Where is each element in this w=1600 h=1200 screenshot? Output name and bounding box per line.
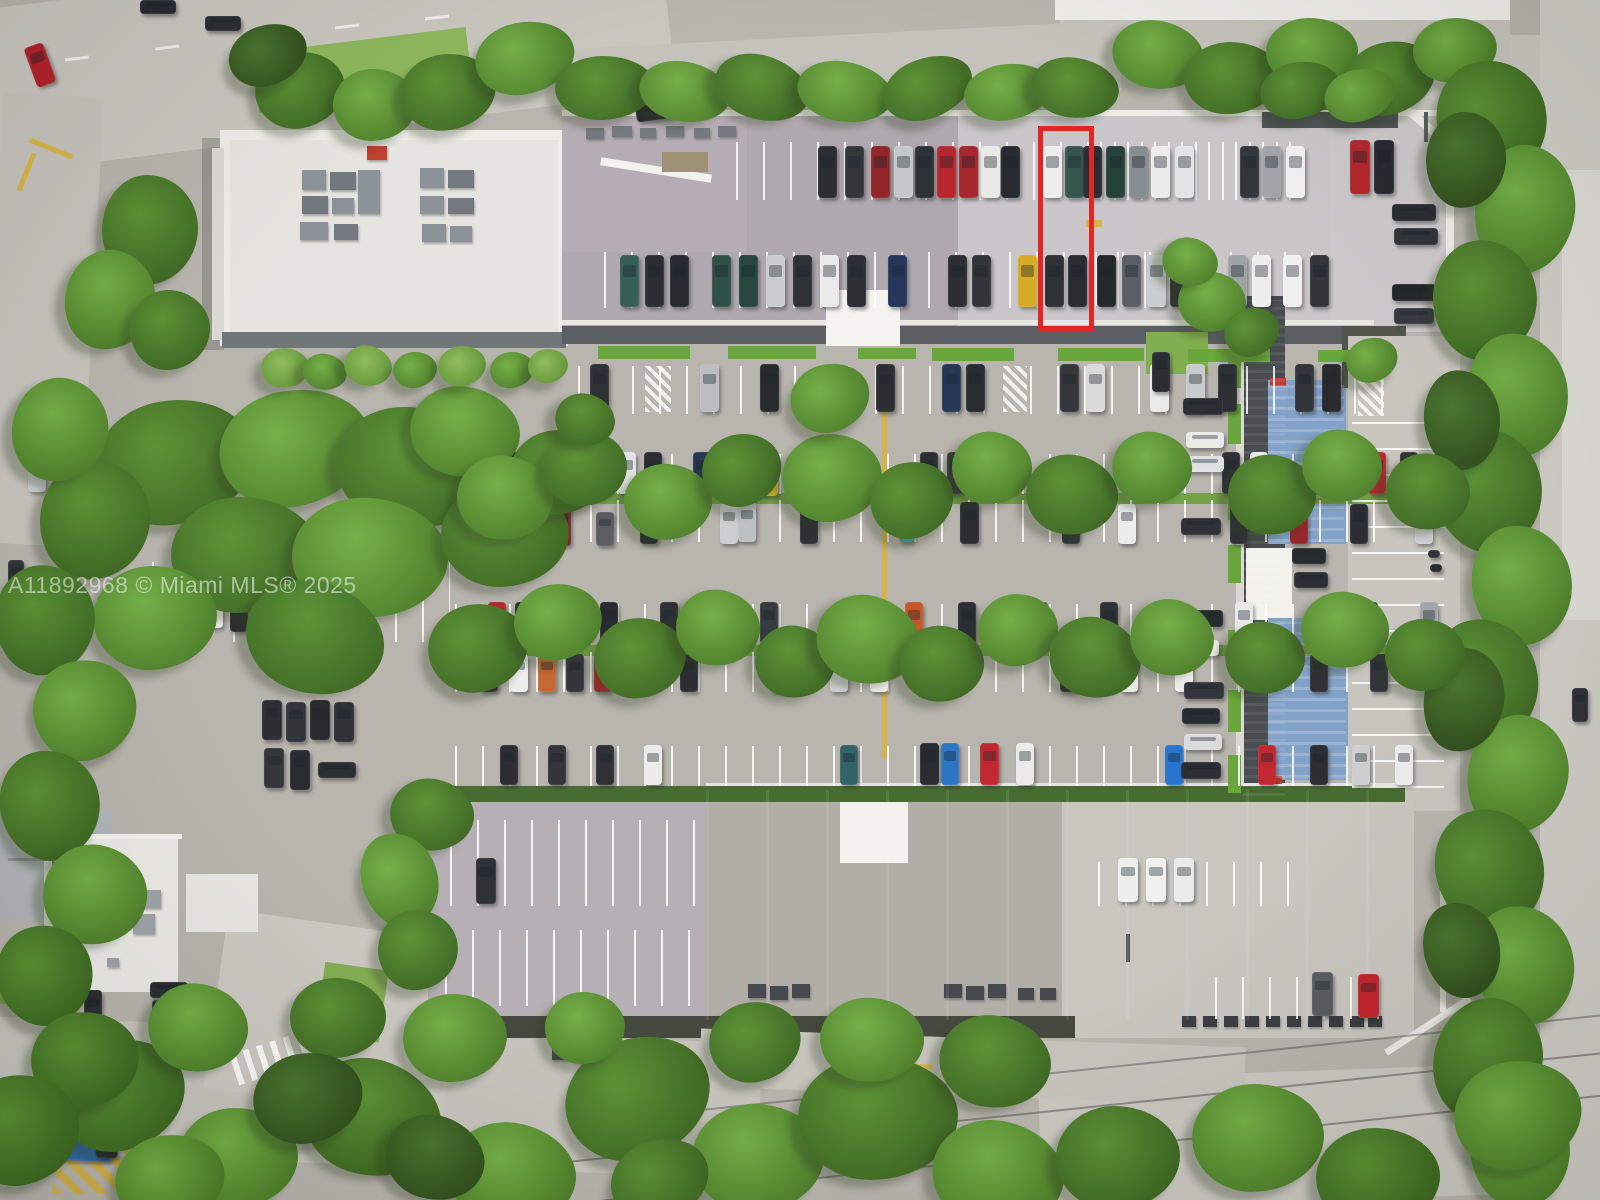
roof-equipment: [586, 128, 604, 139]
tree-canopy: [300, 350, 350, 394]
car: [1097, 255, 1116, 307]
roof-equipment: [666, 126, 684, 137]
car-windshield: [1192, 435, 1218, 439]
car: [548, 745, 566, 785]
car: [1018, 255, 1037, 307]
car: [1122, 255, 1141, 307]
car-windshield: [918, 156, 931, 167]
roof-equipment: [367, 146, 387, 160]
roof-equipment: [612, 126, 632, 137]
car: [566, 654, 584, 692]
tree-canopy: [526, 347, 569, 385]
parking-stripes: [1243, 300, 1285, 796]
car-windshield: [1399, 287, 1429, 291]
car-windshield: [1155, 360, 1167, 369]
car: [500, 745, 518, 785]
car-windshield: [146, 3, 171, 6]
paint-marking: [882, 396, 887, 758]
car: [1152, 352, 1170, 392]
car-windshield: [741, 510, 753, 519]
car: [1016, 743, 1034, 785]
car: [1184, 682, 1224, 699]
car-windshield: [1021, 265, 1034, 276]
car: [1151, 146, 1170, 198]
car-windshield: [1125, 265, 1138, 276]
car-windshield: [293, 758, 307, 767]
tree-canopy: [392, 350, 439, 390]
car-windshield: [1154, 156, 1167, 167]
car: [1258, 745, 1276, 785]
car-windshield: [663, 610, 675, 619]
car-windshield: [1298, 374, 1311, 385]
car-windshield: [1019, 751, 1031, 760]
car-windshield: [1289, 156, 1302, 167]
car: [1286, 146, 1305, 198]
car-windshield: [623, 265, 636, 276]
roof-equipment: [332, 198, 354, 214]
car-windshield: [1187, 521, 1214, 525]
roof-equipment: [420, 168, 444, 188]
car: [840, 745, 858, 785]
car: [286, 702, 306, 742]
roof-equipment: [334, 224, 358, 240]
car-windshield: [763, 374, 776, 385]
car: [980, 743, 999, 785]
car: [1181, 518, 1221, 535]
car-windshield: [963, 510, 976, 519]
car: [264, 748, 284, 788]
car-windshield: [983, 751, 996, 760]
car-windshield: [1377, 151, 1391, 163]
car: [1310, 745, 1328, 785]
car-windshield: [769, 265, 782, 276]
roof-equipment: [718, 126, 736, 137]
car: [959, 146, 978, 198]
car-windshield: [879, 374, 892, 385]
car: [1181, 762, 1221, 779]
car: [720, 504, 738, 544]
roof-equipment: [448, 198, 474, 214]
car-windshield: [715, 265, 728, 276]
car-windshield: [479, 867, 493, 877]
car-windshield: [1089, 374, 1102, 385]
car: [1392, 284, 1436, 301]
car-windshield: [1432, 566, 1440, 568]
paint-marking: [1228, 690, 1241, 732]
car: [1394, 308, 1434, 324]
mls-watermark: A11892968 © Miami MLS® 2025: [8, 572, 357, 599]
car-windshield: [1355, 753, 1367, 762]
car-windshield: [969, 374, 982, 385]
car-windshield: [1004, 156, 1017, 167]
parking-stripes: [706, 790, 1406, 1020]
car: [290, 750, 310, 790]
car: [738, 502, 756, 542]
car: [739, 255, 758, 307]
car-windshield: [1400, 311, 1427, 315]
car-windshield: [211, 19, 236, 22]
car-windshield: [940, 156, 953, 167]
car-windshield: [673, 265, 686, 276]
car-windshield: [891, 265, 904, 276]
car-windshield: [1187, 765, 1214, 769]
car-windshield: [267, 756, 281, 765]
car-windshield: [1261, 753, 1273, 762]
car-windshield: [1063, 374, 1076, 385]
roof-equipment: [422, 224, 446, 242]
roof-equipment: [358, 170, 380, 214]
paint-marking: [1058, 348, 1144, 361]
car-windshield: [1132, 156, 1145, 167]
car: [1252, 255, 1271, 307]
car: [1001, 146, 1020, 198]
ground-shape: [230, 140, 558, 336]
roof-equipment: [302, 170, 326, 190]
car: [1283, 255, 1302, 307]
roof-equipment: [450, 226, 472, 242]
car: [876, 364, 895, 412]
car: [1118, 504, 1136, 544]
car-windshield: [1353, 151, 1367, 163]
car: [915, 146, 934, 198]
car-windshield: [984, 156, 997, 167]
car-windshield: [1265, 156, 1278, 167]
car-windshield: [1100, 265, 1113, 276]
car: [670, 255, 689, 307]
car-windshield: [324, 765, 350, 769]
roof-equipment: [300, 222, 328, 240]
roof-equipment: [448, 170, 474, 188]
car-windshield: [951, 265, 964, 276]
car-windshield: [1221, 374, 1234, 385]
paint-marking: [662, 152, 708, 172]
car: [1294, 572, 1328, 588]
car-windshield: [945, 374, 958, 385]
car: [793, 255, 812, 307]
tree-canopy: [261, 348, 310, 389]
paint-marking: [598, 346, 690, 359]
car: [818, 146, 837, 198]
paint-marking: [858, 348, 916, 359]
car: [1175, 146, 1194, 198]
car-windshield: [944, 751, 956, 760]
car: [1262, 146, 1281, 198]
car: [871, 146, 890, 198]
car-windshield: [1313, 265, 1326, 276]
car: [942, 364, 961, 412]
car-windshield: [796, 265, 809, 276]
paint-marking: [932, 348, 1014, 361]
car-windshield: [1353, 512, 1365, 521]
tree-canopy: [340, 341, 396, 391]
car-windshield: [1178, 156, 1191, 167]
paint-marking: [1424, 112, 1428, 142]
tree-canopy: [435, 343, 488, 389]
car: [1118, 858, 1138, 902]
car-windshield: [1231, 265, 1244, 276]
car-windshield: [1109, 156, 1122, 167]
car-windshield: [1121, 867, 1135, 877]
car: [847, 255, 866, 307]
car: [920, 743, 939, 785]
car: [1358, 974, 1379, 1018]
car-windshield: [1325, 374, 1338, 385]
ground-shape: [1055, 0, 1510, 20]
car: [1350, 504, 1368, 544]
car: [1428, 550, 1440, 558]
ground-shape: [212, 148, 224, 340]
car-windshield: [337, 710, 351, 719]
car: [1186, 432, 1224, 448]
car-windshield: [850, 265, 863, 276]
car-windshield: [897, 156, 910, 167]
car-windshield: [593, 374, 606, 385]
car-windshield: [1401, 231, 1431, 235]
car-windshield: [1189, 401, 1216, 405]
car: [1182, 708, 1220, 724]
car: [140, 0, 176, 14]
car-windshield: [1399, 207, 1429, 211]
car-windshield: [551, 753, 563, 762]
car-windshield: [763, 610, 775, 619]
parking-stripes: [1003, 366, 1027, 412]
car-windshield: [1297, 551, 1320, 555]
car-windshield: [1430, 552, 1438, 554]
car: [1060, 364, 1079, 412]
car-windshield: [1398, 753, 1410, 762]
paint-marking: [728, 346, 816, 359]
car-windshield: [1238, 610, 1250, 619]
car: [1374, 140, 1394, 194]
car: [1310, 255, 1329, 307]
car: [820, 255, 839, 307]
car-windshield: [541, 662, 553, 670]
car: [1572, 688, 1588, 722]
car-windshield: [961, 610, 973, 619]
car-windshield: [29, 51, 45, 64]
car: [620, 255, 639, 307]
car: [476, 858, 496, 904]
car: [888, 255, 907, 307]
car-windshield: [923, 751, 936, 760]
car-windshield: [1150, 265, 1163, 276]
car-windshield: [599, 519, 611, 526]
car: [1350, 140, 1370, 194]
car: [1352, 745, 1370, 785]
car: [937, 146, 956, 198]
car-windshield: [603, 610, 615, 619]
car-windshield: [648, 265, 661, 276]
car-windshield: [1361, 983, 1375, 993]
car: [1183, 398, 1223, 415]
car: [1392, 204, 1436, 221]
car: [262, 700, 282, 740]
car-windshield: [1225, 460, 1237, 469]
car: [1184, 734, 1222, 750]
car-windshield: [1286, 265, 1299, 276]
car-windshield: [1189, 374, 1202, 385]
roof-equipment: [420, 196, 444, 214]
car: [960, 502, 979, 544]
aerial-photo: A11892968 © Miami MLS® 2025: [0, 0, 1600, 1200]
car: [1322, 364, 1341, 412]
car-windshield: [742, 265, 755, 276]
car: [1292, 548, 1326, 564]
car: [966, 364, 985, 412]
roof-equipment: [640, 128, 656, 138]
car: [948, 255, 967, 307]
roof-equipment: [694, 128, 710, 138]
car-windshield: [1313, 753, 1325, 762]
car: [1312, 972, 1333, 1016]
car: [334, 702, 354, 742]
ground-shape: [186, 874, 258, 932]
car-windshield: [1188, 711, 1214, 715]
car: [644, 745, 662, 785]
car-windshield: [1168, 753, 1180, 762]
car-windshield: [962, 156, 975, 167]
car: [596, 512, 614, 546]
car-windshield: [975, 265, 988, 276]
car-windshield: [1255, 265, 1268, 276]
car: [1394, 228, 1438, 245]
car: [894, 146, 913, 198]
car-windshield: [289, 710, 303, 719]
car: [596, 745, 614, 785]
car-windshield: [569, 662, 581, 670]
car-windshield: [1299, 575, 1322, 579]
car-windshield: [503, 753, 515, 762]
car-windshield: [843, 753, 855, 762]
car: [760, 364, 779, 412]
car-windshield: [1373, 662, 1385, 670]
car-windshield: [1575, 695, 1586, 702]
car: [972, 255, 991, 307]
car: [645, 255, 664, 307]
car: [1395, 745, 1413, 785]
car: [1430, 564, 1442, 572]
car: [1174, 858, 1194, 902]
car: [1129, 146, 1148, 198]
car-windshield: [823, 265, 836, 276]
car-windshield: [1177, 867, 1191, 877]
aerial-photo-scene: [0, 0, 1600, 1200]
car: [318, 762, 356, 778]
ground-shape: [222, 332, 566, 348]
car-windshield: [313, 708, 327, 717]
car-windshield: [1243, 156, 1256, 167]
car-windshield: [1190, 737, 1216, 741]
car-windshield: [821, 156, 834, 167]
car-windshield: [1190, 685, 1217, 689]
car: [766, 255, 785, 307]
car: [941, 743, 959, 785]
car-windshield: [874, 156, 887, 167]
car: [981, 146, 1000, 198]
paint-marking: [1228, 545, 1241, 583]
car: [1240, 146, 1259, 198]
roof-equipment: [302, 196, 328, 214]
car-windshield: [1315, 981, 1329, 991]
car: [712, 255, 731, 307]
subject-parking-space-highlight: [1038, 126, 1094, 331]
roof-equipment: [107, 958, 119, 967]
car-windshield: [265, 708, 279, 717]
car: [1146, 858, 1166, 902]
tree-canopy: [130, 290, 210, 370]
car: [700, 364, 719, 412]
car-windshield: [1121, 512, 1133, 521]
car: [845, 146, 864, 198]
car: [1106, 146, 1125, 198]
car: [1295, 364, 1314, 412]
car-windshield: [1149, 867, 1163, 877]
car: [1086, 364, 1105, 412]
car-windshield: [723, 512, 735, 521]
roof-equipment: [330, 172, 356, 190]
car-windshield: [87, 998, 99, 1007]
car-windshield: [647, 753, 659, 762]
car: [310, 700, 330, 740]
car-windshield: [703, 374, 716, 385]
car: [205, 16, 241, 31]
parking-stripes: [645, 366, 671, 412]
car-windshield: [1192, 459, 1218, 463]
car-windshield: [599, 753, 611, 762]
car-windshield: [848, 156, 861, 167]
